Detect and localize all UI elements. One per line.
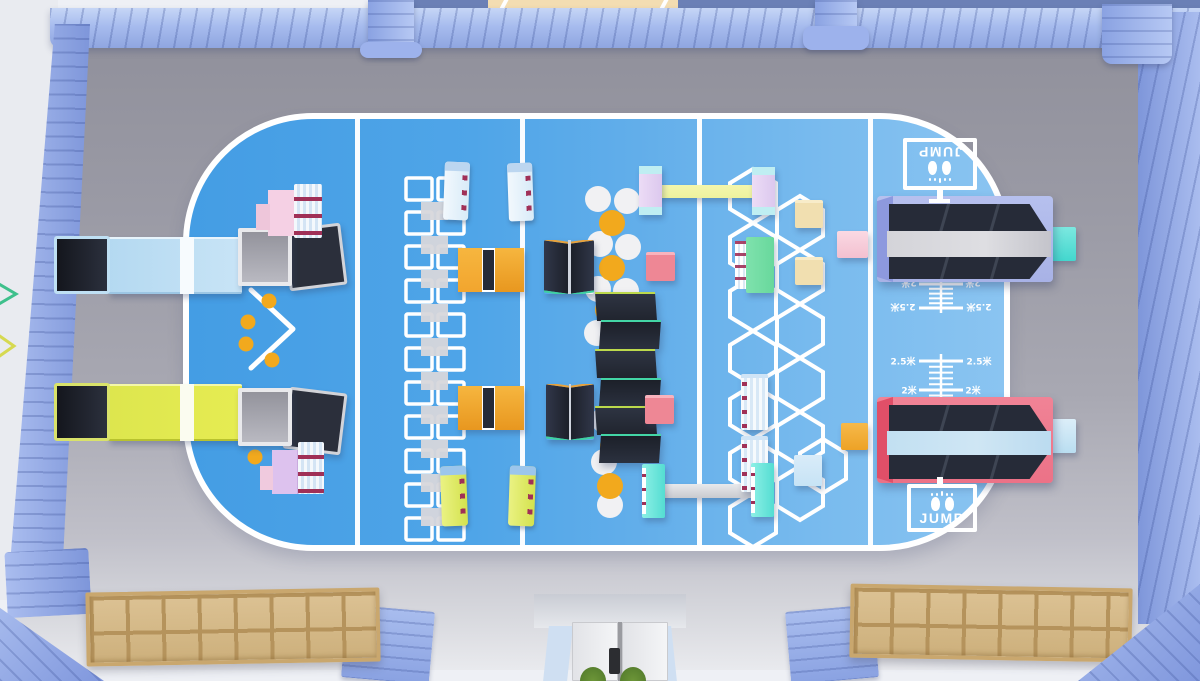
mat-panel	[495, 386, 524, 430]
mat-panel	[495, 248, 524, 292]
jump-sign-label: JUMP	[918, 145, 963, 159]
bench-striped	[741, 374, 768, 430]
shelf-step	[260, 466, 273, 490]
sign-arc-marks	[929, 178, 951, 183]
door-handle	[609, 648, 620, 674]
a-frame-mat-top	[544, 240, 594, 294]
mat-fold	[483, 250, 494, 290]
ruler-label: 2米	[965, 385, 981, 397]
shelf-block-lavender	[272, 450, 300, 494]
entrance-door	[534, 594, 686, 681]
sign-arc-marks	[931, 491, 953, 496]
hurdle-post	[507, 163, 534, 222]
ruler-label: 2.5米	[967, 356, 993, 368]
folded-mat-orange-top	[458, 248, 524, 292]
post-cap	[752, 207, 775, 215]
tramp-panel-dark	[889, 455, 1047, 479]
door-side-strip	[543, 626, 573, 681]
accordion-wave-mat	[596, 292, 664, 464]
tramp-run-lane-gray	[887, 231, 1051, 257]
ruler-label: 2.5米	[891, 356, 917, 368]
mat-panel	[458, 248, 482, 292]
trampoline-lane-bottom	[877, 397, 1053, 485]
ramp-steep-mat-yellow	[54, 383, 110, 441]
square-mat-tan	[795, 257, 823, 285]
distance-ruler-bottom: 2.5米 2.5米 2米 2米	[891, 354, 993, 399]
tramp-run-lane-blue	[887, 431, 1051, 455]
mat-fold-panel	[599, 320, 661, 349]
wall-corner-top-right	[1102, 4, 1172, 64]
sign-base	[929, 199, 950, 203]
ceiling-beam-base	[360, 42, 422, 58]
hurdle-post-green	[508, 466, 536, 527]
square-mat-pink	[646, 252, 675, 281]
shelf-striped-unit	[298, 442, 324, 494]
post-cap	[639, 207, 662, 215]
square-mat-pink	[645, 395, 674, 424]
feet-icon	[929, 162, 952, 176]
ramp-divider-yellow	[180, 384, 194, 441]
wall-top	[50, 8, 1200, 48]
jump-sign-bottom: JUMP	[907, 484, 977, 532]
ruler-label: 2.5米	[966, 301, 992, 313]
ramp-steep-mat-blue	[54, 236, 110, 294]
jump-sign-top: JUMP	[903, 138, 977, 190]
toy-shelf-bottom	[258, 436, 328, 496]
tramp-panel-dark	[889, 257, 1047, 279]
beam-post-lavender	[639, 166, 662, 215]
folded-mat-orange-bottom	[458, 386, 524, 430]
mat-fold-panel	[595, 292, 657, 321]
a-frame-mat-bottom	[546, 384, 594, 440]
post-cap	[752, 167, 775, 175]
post-cap	[639, 166, 662, 174]
ruler-label: 2米	[901, 385, 917, 397]
indoor-playground-top-view: 2米 2米 2.5米 2.5米 2.5米 2.5米 2米 2米	[0, 0, 1200, 681]
tramp-panel-dark	[889, 405, 1047, 431]
ramp-deck-yellow	[108, 384, 242, 441]
beam-post-lavender	[752, 167, 775, 215]
trampoline-lane-top	[877, 196, 1053, 284]
ramp-divider-blue	[180, 237, 194, 294]
shelf-striped-unit	[294, 184, 322, 238]
mat-fold	[483, 388, 494, 428]
hurdle-post-green	[440, 466, 468, 527]
beam-post-teal	[642, 464, 665, 518]
wall-corner-bottom-left	[4, 548, 91, 618]
mat-panel	[458, 386, 482, 430]
square-mat-lightblue	[794, 455, 822, 486]
mat-fold-panel	[595, 349, 657, 378]
shoe-cubby-right	[849, 584, 1132, 663]
wall-right	[1138, 12, 1200, 624]
post-stripe	[642, 468, 646, 514]
square-mat-tan	[795, 200, 823, 228]
bench-stripe-edge	[735, 241, 746, 289]
hurdle-post	[443, 162, 470, 221]
bench-green	[746, 237, 774, 293]
balance-beam-yellow	[656, 185, 756, 198]
ramp-deck-blue	[108, 237, 242, 294]
ceiling-beam-base	[803, 26, 869, 50]
beam-post-teal	[751, 463, 774, 517]
bench-dash	[742, 382, 747, 428]
toy-shelf-top	[256, 182, 326, 240]
shoe-cubby-left	[85, 587, 380, 666]
jump-sign-label: JUMP	[920, 511, 965, 525]
square-mat-orange	[841, 423, 868, 450]
post-stripe	[751, 467, 755, 513]
shelf-step	[256, 204, 270, 230]
bench-pink	[837, 231, 868, 258]
ruler-label: 2.5米	[890, 301, 916, 313]
tramp-panel-dark	[889, 204, 1047, 231]
mat-fold-panel	[599, 434, 661, 463]
bench-dash	[742, 444, 747, 490]
feet-icon	[931, 497, 954, 511]
